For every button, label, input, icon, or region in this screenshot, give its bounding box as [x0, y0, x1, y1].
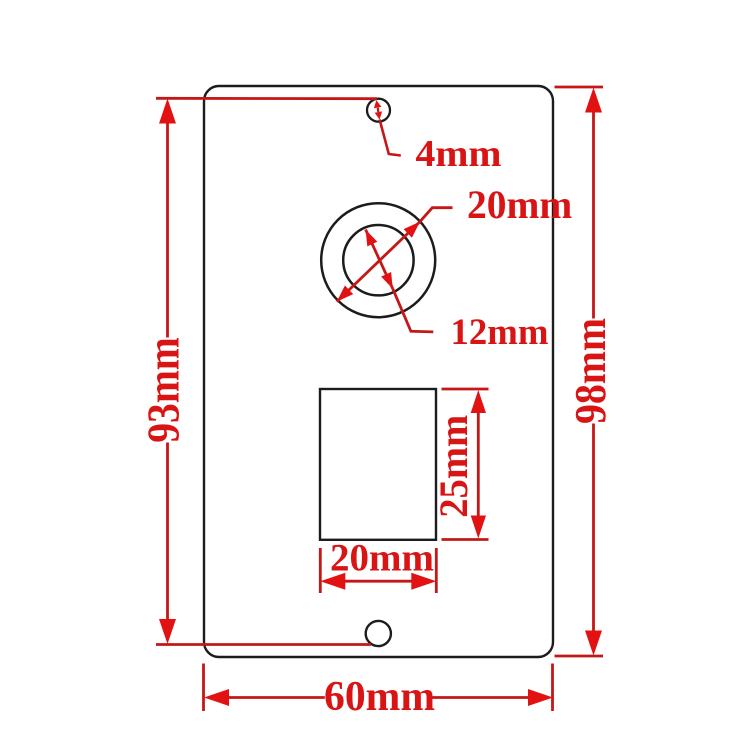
svg-text:4mm: 4mm — [416, 133, 502, 175]
svg-text:60mm: 60mm — [324, 673, 435, 720]
svg-text:20mm: 20mm — [467, 182, 572, 227]
svg-text:20mm: 20mm — [330, 536, 434, 579]
svg-text:98mm: 98mm — [566, 318, 615, 424]
svg-text:25mm: 25mm — [431, 415, 476, 518]
svg-text:12mm: 12mm — [451, 312, 549, 353]
svg-text:93mm: 93mm — [138, 337, 189, 443]
